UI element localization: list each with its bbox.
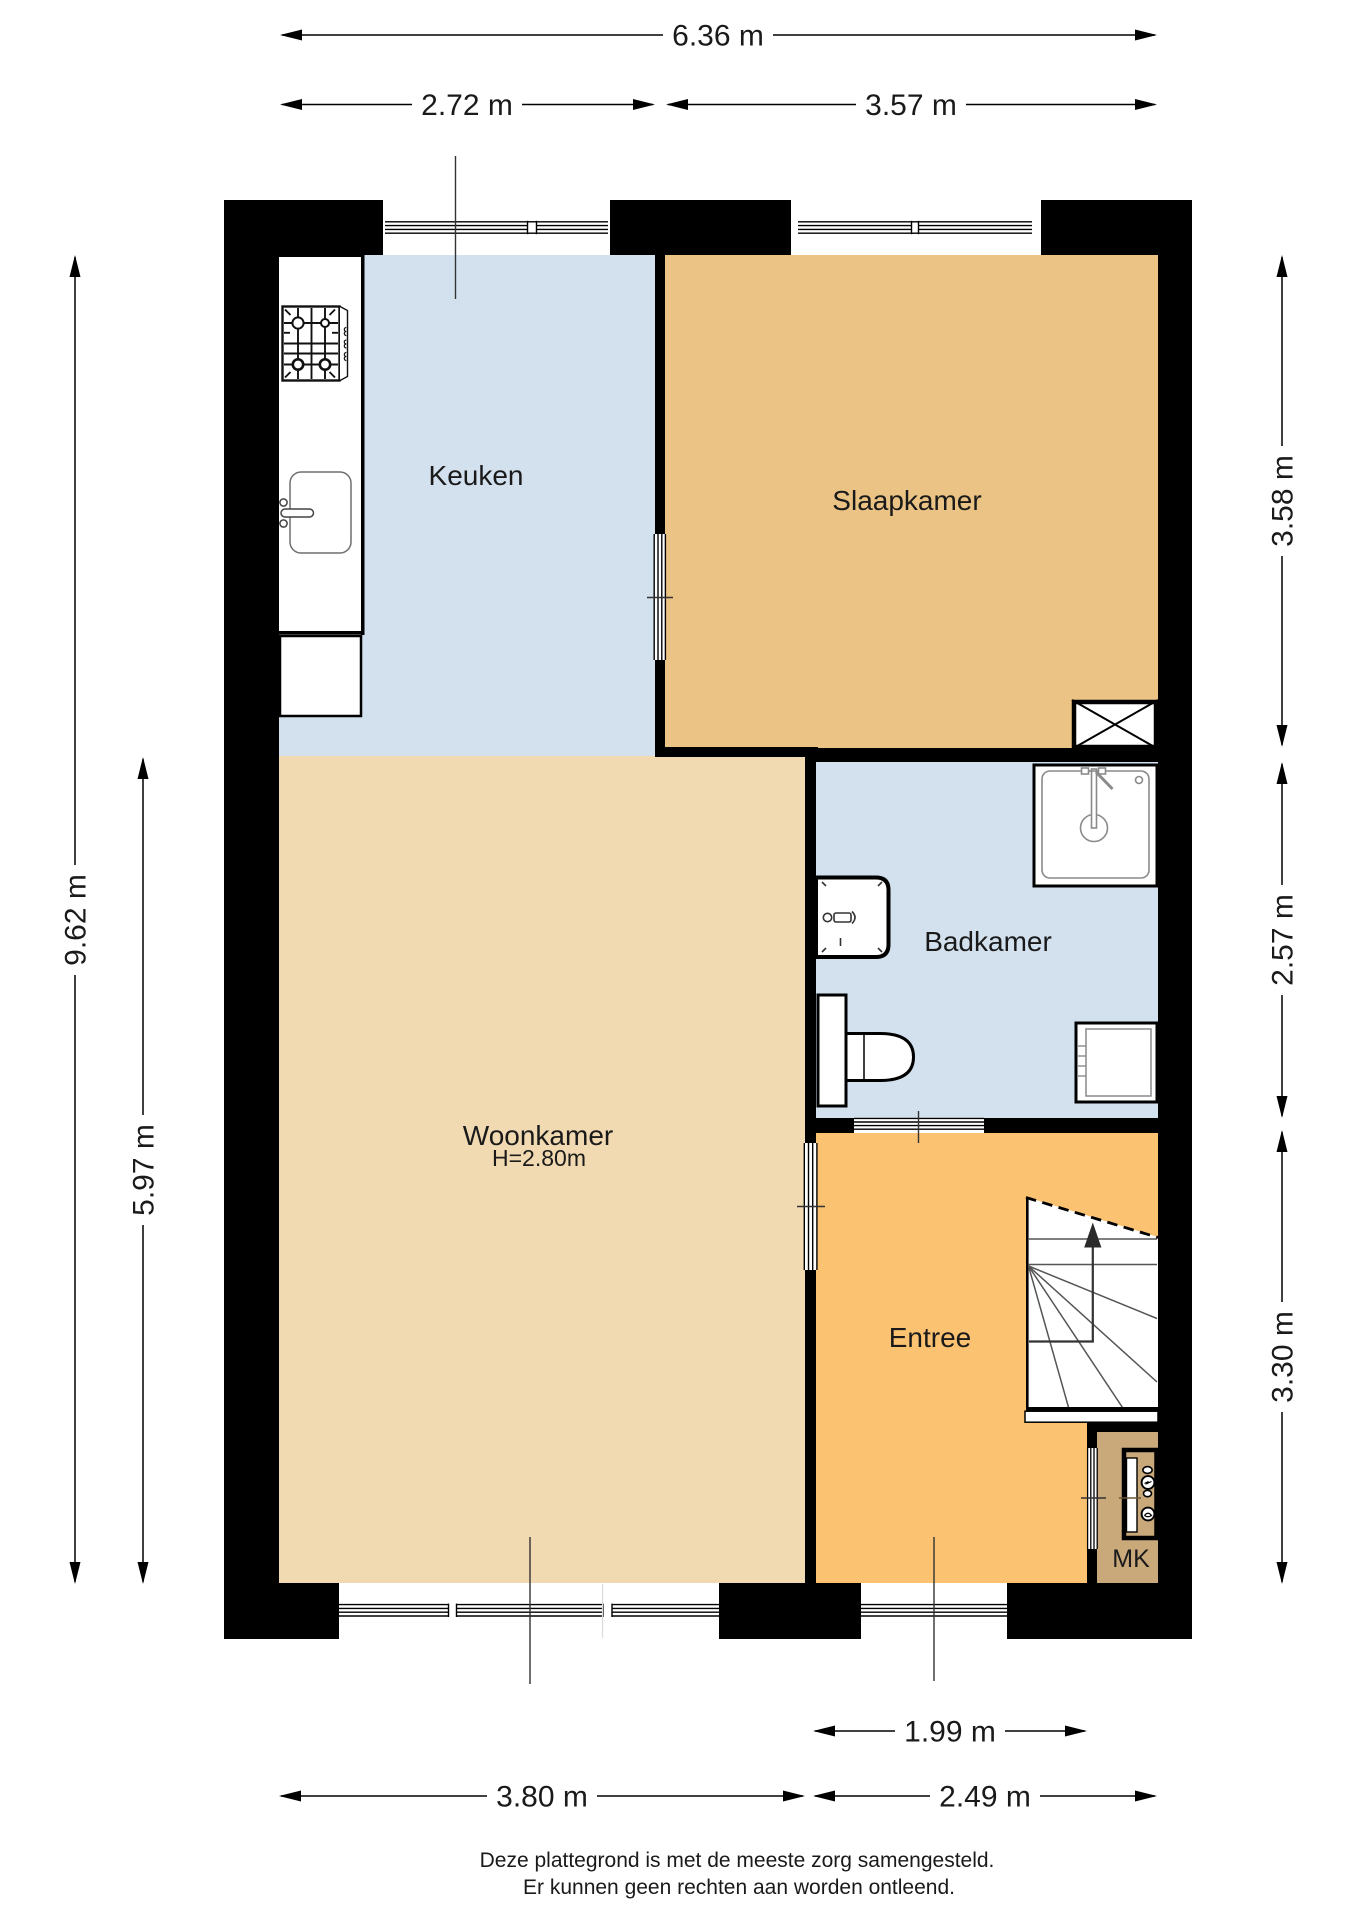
- svg-text:Slaapkamer: Slaapkamer: [832, 485, 981, 516]
- svg-text:3.57 m: 3.57 m: [865, 89, 957, 122]
- svg-text:3.80 m: 3.80 m: [496, 1781, 588, 1814]
- svg-text:MK: MK: [1112, 1545, 1150, 1573]
- svg-text:H=2.80m: H=2.80m: [492, 1145, 586, 1171]
- svg-text:3.30 m: 3.30 m: [1267, 1311, 1300, 1403]
- svg-text:5.97 m: 5.97 m: [128, 1124, 161, 1216]
- svg-text:6.36 m: 6.36 m: [672, 20, 764, 53]
- svg-text:1.99 m: 1.99 m: [904, 1716, 996, 1749]
- svg-text:2.49 m: 2.49 m: [939, 1781, 1031, 1814]
- svg-text:9.62 m: 9.62 m: [60, 874, 93, 966]
- svg-text:Badkamer: Badkamer: [924, 926, 1052, 957]
- svg-text:Keuken: Keuken: [429, 460, 524, 491]
- svg-text:2.57 m: 2.57 m: [1267, 894, 1300, 986]
- svg-text:3.58 m: 3.58 m: [1267, 455, 1300, 547]
- svg-text:2.72 m: 2.72 m: [421, 89, 513, 122]
- svg-text:Entree: Entree: [889, 1322, 972, 1353]
- svg-text:Deze plattegrond is met de mee: Deze plattegrond is met de meeste zorg s…: [480, 1849, 995, 1872]
- svg-text:Er kunnen geen rechten aan wor: Er kunnen geen rechten aan worden ontlee…: [523, 1876, 955, 1899]
